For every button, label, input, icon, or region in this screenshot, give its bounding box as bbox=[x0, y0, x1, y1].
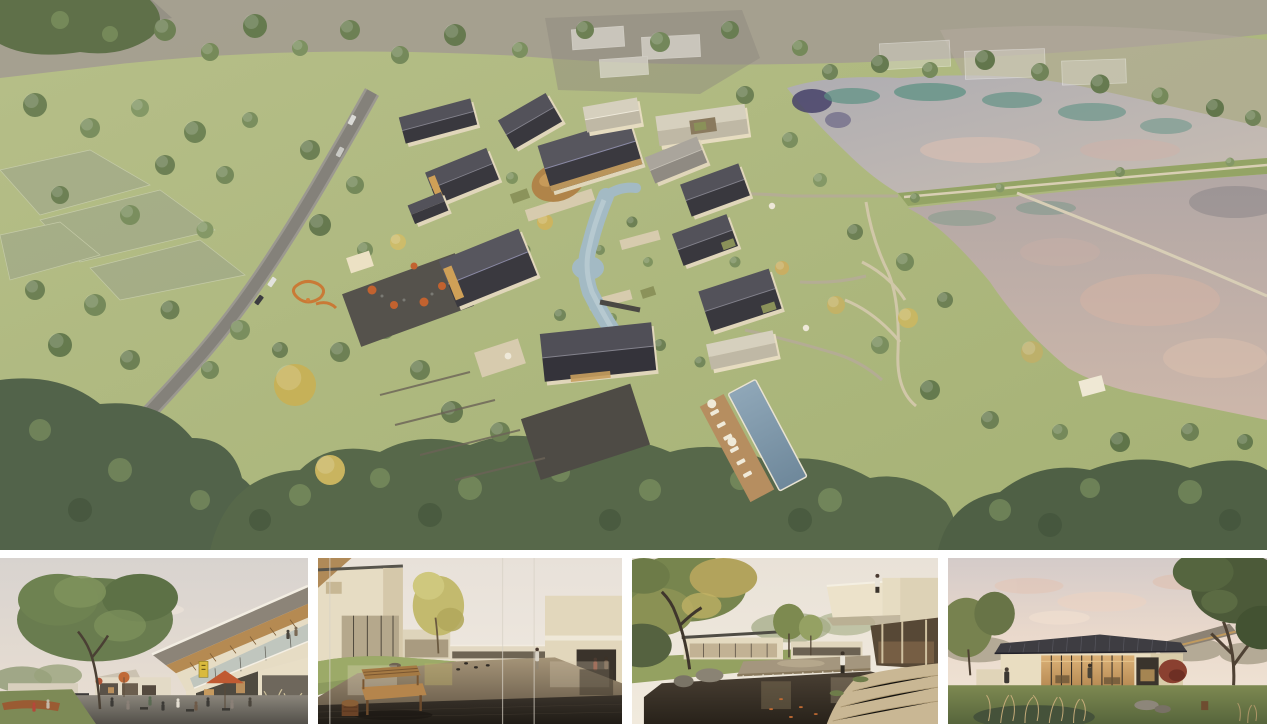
person-inside bbox=[1088, 664, 1092, 679]
balcony-person bbox=[286, 630, 289, 639]
standing-person bbox=[1004, 667, 1009, 683]
stump bbox=[1201, 701, 1208, 710]
sunset-reflection bbox=[1080, 274, 1220, 326]
autumn-foliage bbox=[690, 558, 758, 598]
waterfall-scene bbox=[632, 558, 938, 724]
thumbnail-row bbox=[0, 558, 1267, 724]
sky-reflection bbox=[920, 137, 1040, 163]
side-stool bbox=[342, 700, 359, 716]
dark-tree-reflection bbox=[792, 89, 832, 113]
thumb-dusk-pavilion-view bbox=[948, 558, 1267, 724]
balcony-slab bbox=[545, 636, 622, 641]
thumb-plaza-view bbox=[0, 558, 308, 724]
tree-reflection bbox=[425, 663, 453, 685]
glazing bbox=[690, 643, 777, 657]
plaza-scene bbox=[0, 558, 308, 724]
aerial-scene bbox=[0, 0, 1267, 550]
glazing bbox=[342, 616, 399, 660]
balcony-box bbox=[827, 582, 883, 618]
thumb-reflecting-pond-view bbox=[318, 558, 622, 724]
balcony-person bbox=[875, 574, 880, 593]
left-house bbox=[318, 558, 403, 662]
reflecting-pond-scene bbox=[318, 558, 622, 724]
thumb-waterfall-pond-view bbox=[632, 558, 938, 724]
dusk-pavilion-scene bbox=[948, 558, 1267, 724]
rendering-board bbox=[0, 0, 1267, 724]
balcony-person bbox=[294, 627, 297, 636]
golden-tree bbox=[274, 364, 316, 406]
aerial-masterplan-rendering bbox=[0, 0, 1267, 550]
